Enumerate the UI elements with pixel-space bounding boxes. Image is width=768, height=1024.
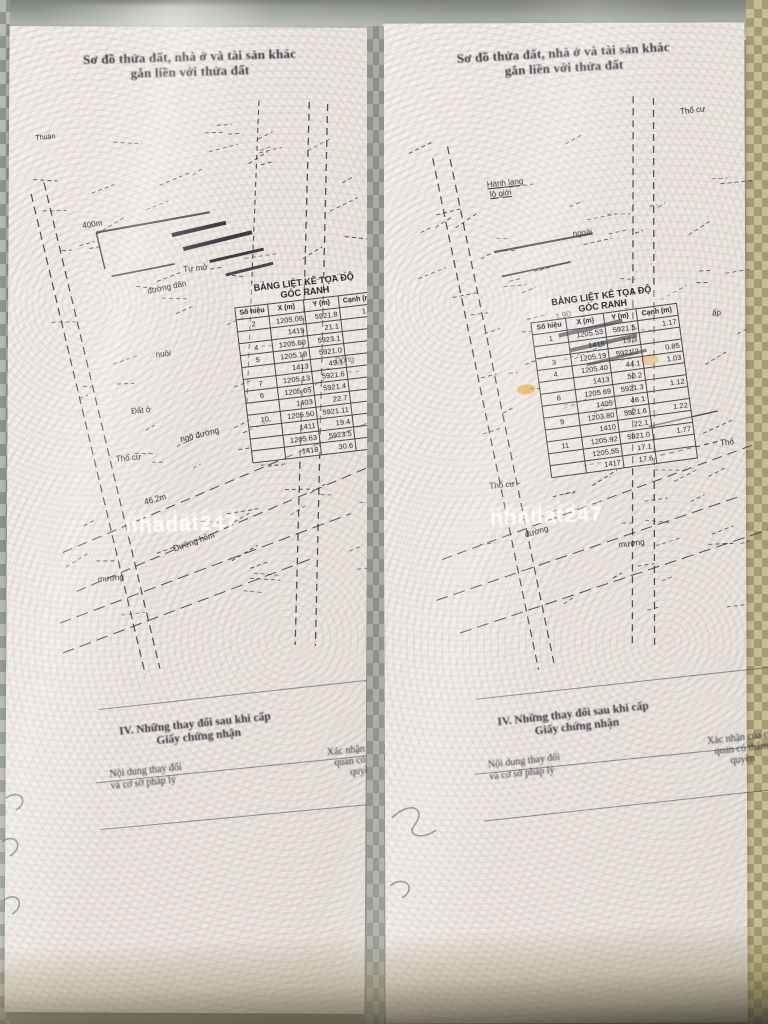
parcel-boundary-line [720, 180, 752, 184]
page-gap-artifact-strip [367, 26, 384, 1024]
parcel-boundary-line [704, 352, 727, 364]
parcel-boundary-line [31, 187, 145, 681]
parcel-boundary-line [569, 201, 583, 207]
parcel-boundary-line [290, 506, 307, 515]
parcel-boundary-line [483, 427, 504, 434]
parcel-boundary-line [258, 132, 273, 139]
parcel-boundary-line [152, 461, 163, 463]
parcel-boundary-line [349, 546, 361, 551]
parcel-boundary-line [496, 237, 507, 240]
parcel-boundary-line [209, 249, 264, 261]
parcel-boundary-line [79, 395, 88, 398]
parcel-boundary-line [51, 320, 76, 324]
parcel-boundary-line [209, 144, 238, 151]
parcel-boundary-line [321, 493, 333, 496]
parcel-boundary-line [552, 491, 575, 496]
parcel-boundary-line [563, 598, 574, 604]
watermark-text: nhadat247 [125, 511, 239, 538]
parcel-boundary-line [254, 571, 279, 578]
parcel-boundary-line [329, 198, 359, 212]
parcel-boundary-line [114, 139, 143, 147]
parcel-boundary-line [250, 562, 269, 569]
parcel-boundary-line [687, 220, 713, 235]
parcel-boundary-line [436, 209, 462, 215]
parcel-boundary-line [192, 167, 205, 175]
parcel-boundary-line [484, 328, 501, 333]
diagram-label: Thổ [720, 437, 735, 447]
parcel-boundary-line [96, 559, 116, 563]
parcel-boundary-line [231, 545, 259, 560]
parcel-boundary-line [182, 232, 253, 249]
parcel-boundary-line [260, 147, 271, 151]
parcel-boundary-line [654, 467, 686, 474]
parcel-boundary-line [96, 232, 105, 269]
parcel-boundary-line [699, 270, 712, 272]
parcel-boundary-line [217, 124, 232, 126]
parcel-boundary-line [307, 138, 333, 151]
parcel-boundary-line [454, 213, 479, 228]
parcel-boundary-line [417, 268, 447, 279]
coordinate-table-body: 11205.535921.51.17141519.331205.195921.2… [532, 315, 697, 477]
parcel-boundary-line [62, 250, 72, 251]
changes-col-left: Nội dung thay đổi và cơ sở pháp lý [109, 762, 184, 802]
parcel-boundary-line [113, 355, 139, 364]
parcel-boundary-line [708, 468, 726, 477]
parcel-boundary-line [502, 408, 514, 413]
parcel-boundary-line [193, 464, 201, 469]
yellow-highlight-mark [517, 384, 536, 396]
parcel-boundary-line [727, 604, 749, 607]
parcel-boundary-line [43, 209, 67, 213]
diagram-label: ấp [712, 308, 722, 318]
parcel-boundary-line [44, 176, 160, 675]
parcel-boundary-line [79, 242, 95, 246]
parcel-boundary-line [644, 498, 668, 501]
parcel-boundary-line [245, 254, 277, 259]
parcel-boundary-line [711, 526, 734, 534]
parcel-boundary-line [740, 541, 750, 544]
parcel-boundary-line [608, 229, 628, 234]
parcel-boundary-line [522, 287, 537, 293]
coordinate-table: BẢNG LIỆT KÊ TỌA ĐỘ GÓC RANH Số hiệu X (… [527, 281, 698, 478]
parcel-boundary-line [564, 135, 582, 144]
parcel-boundary-line [248, 152, 269, 164]
parcel-boundary-line [238, 448, 250, 450]
parcel-boundary-line [83, 385, 92, 388]
parcel-boundary-line [228, 133, 241, 135]
parcel-boundary-line [121, 612, 145, 615]
parcel-boundary-line [635, 231, 643, 234]
certificate-page-left: Sơ đồ thửa đất, nhà ở và tài sản khác gắ… [4, 26, 369, 1014]
parcel-boundary-line [111, 264, 175, 276]
parcel-boundary-line [408, 142, 434, 154]
parcel-boundary-line [697, 281, 710, 284]
parcel-boundary-line [583, 238, 612, 245]
parcel-boundary-line [205, 131, 223, 134]
parcel-boundary-line [509, 278, 521, 281]
parcel-boundary-line [448, 141, 554, 668]
diagram-label: nuôi [155, 349, 171, 359]
parcel-boundary-line [503, 284, 526, 287]
parcel-boundary-line [622, 522, 631, 524]
certificate-page-right: Sơ đồ thửa đất, nhà ở và tài sản khác gắ… [382, 22, 747, 1023]
watermark-text: nhadat247 [490, 503, 604, 531]
parcel-boundary-line [613, 573, 623, 578]
parcel-boundary-line [210, 267, 222, 269]
parcel-boundary-line [146, 201, 170, 210]
parcel-boundary-line [225, 263, 273, 275]
parcel-boundary-line [690, 495, 705, 502]
parcel-boundary-line [637, 564, 654, 566]
parcel-boundary-line [587, 214, 617, 220]
parcel-boundary-line [737, 329, 747, 334]
parcel-boundary-line [56, 558, 322, 653]
parcel-boundary-line [650, 205, 658, 206]
parcel-boundary-line [420, 227, 432, 232]
parcel-boundary-line [243, 589, 262, 594]
photo-of-land-certificate: Sơ đồ thửa đất, nhà ở và tài sản khác gắ… [0, 0, 768, 1024]
parcel-boundary-line [470, 313, 489, 315]
parcel-boundary-line [83, 520, 95, 526]
coordinate-table-grid: Số hiệu X (m) Y (m) Cạnh (m) 11205.53592… [530, 303, 698, 478]
parcel-boundary-line [702, 420, 733, 433]
parcel-boundary-line [725, 269, 749, 273]
parcel-boundary-line [453, 529, 768, 633]
parcel-boundary-line [261, 162, 273, 165]
parcel-boundary-line [661, 576, 673, 580]
parcel-boundary-line [655, 538, 680, 546]
changes-section: IV. Những thay đổi sau khi cấp Giấy chứn… [463, 684, 768, 795]
parcel-boundary-line [658, 203, 666, 208]
parcel-boundary-line [159, 173, 190, 185]
parcel-boundary-line [712, 177, 728, 180]
parcel-boundary-line [65, 552, 91, 567]
parcel-boundary-line [673, 470, 698, 482]
parcel-boundary-line [342, 176, 355, 183]
parcel-boundary-line [645, 518, 669, 525]
parcel-boundary-line [452, 292, 480, 297]
parcel-boundary-line [175, 306, 195, 314]
parcel-boundary-line [345, 234, 369, 241]
parcel-boundary-line [433, 153, 539, 675]
parcel-boundary-line [91, 184, 115, 193]
parcel-boundary-line [162, 296, 188, 302]
parcel-boundary-line [509, 372, 518, 373]
footer-rule [484, 787, 768, 822]
parcel-boundary-line [33, 177, 57, 183]
parcel-boundary-line [145, 425, 155, 430]
parcel-boundary-line [647, 607, 661, 611]
parcel-boundary-line [117, 382, 134, 385]
parcel-boundary-line [522, 331, 531, 333]
parcel-boundary-line [480, 253, 493, 259]
parcel-boundary-line [435, 218, 452, 228]
